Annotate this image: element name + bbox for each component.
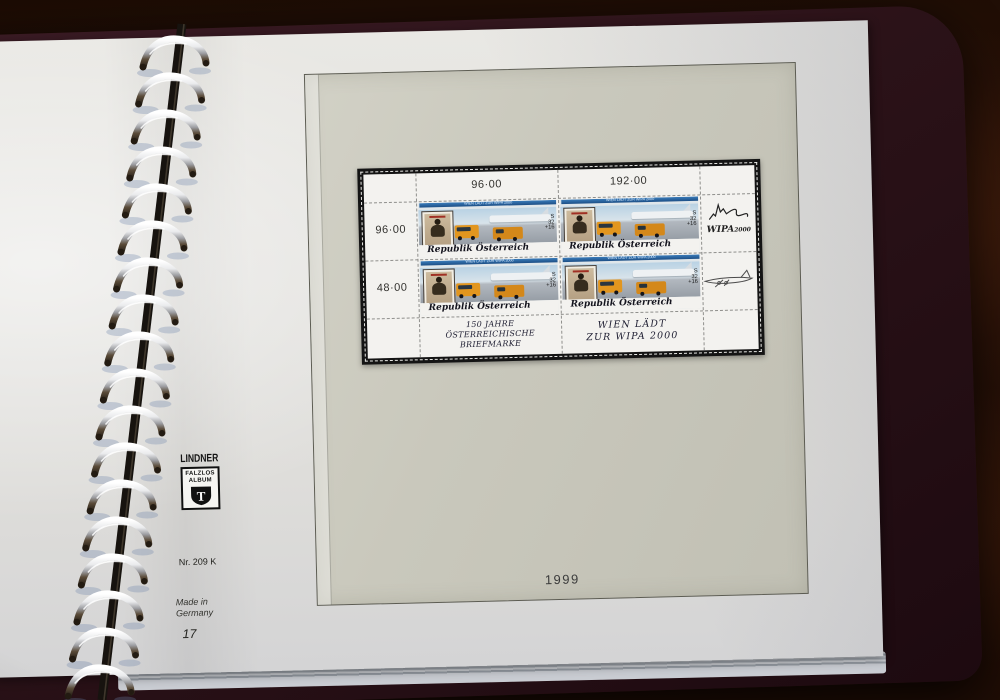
souvenir-sheet: 96·00 192·00 96·00 48·00 WIEN LÄDT ZUR W… (363, 165, 758, 358)
inner-stamp-title-line (429, 216, 445, 218)
stamp-value: S 32 +16 (545, 214, 555, 230)
black-stamp-mount: 96·00 192·00 96·00 48·00 WIEN LÄDT ZUR W… (357, 159, 765, 365)
airplane-sketch-icon (703, 267, 756, 295)
stamp-cell: WIEN LÄDT ZUR WIPA 2000 S 32 +16 Republi… (417, 199, 558, 258)
stamp-on-stamp (564, 208, 595, 244)
spiral-ring-binding (30, 0, 250, 700)
orange-apron-truck-icon (598, 279, 622, 293)
sheet-margin-value-row2: 48·00 (366, 281, 418, 294)
stamp-cell: WIEN LÄDT ZUR WIPA 2000 S 32 +16 Republi… (418, 257, 559, 316)
portrait-body (573, 221, 587, 233)
stamp-value: S 32 +16 (687, 211, 697, 227)
portrait-body (574, 279, 588, 291)
stamp-country-strip: Republik Österreich (562, 296, 700, 311)
stamp-artwork: S 32 +16 (560, 203, 699, 241)
orange-mail-truck-icon (636, 281, 666, 294)
stamp: WIEN LÄDT ZUR WIPA 2000 S 32 +16 Republi… (419, 258, 558, 315)
photo-of-stamp-album: 96·00 192·00 96·00 48·00 WIEN LÄDT ZUR W… (0, 0, 1000, 700)
sheet-caption-left: 150 JAHRE ÖSTERREICHISCHE BRIEFMARKE (420, 318, 561, 351)
stamp-country-strip: Republik Österreich (421, 300, 559, 315)
stamp-value: S 32 +16 (546, 272, 556, 288)
stamp-country-strip: Republik Österreich (419, 242, 557, 257)
country-name-script: Republik Österreich (569, 239, 671, 251)
airplane-icon (631, 211, 693, 220)
stamp-artwork: S 32 +16 (420, 265, 559, 303)
stamp-artwork: S 32 +16 (562, 261, 701, 299)
stamp-artwork: S 32 +16 (418, 207, 557, 245)
stamp-value: S 32 +16 (688, 268, 698, 284)
orange-apron-truck-icon (455, 225, 479, 239)
wipa-logo-text: WIPA (707, 225, 735, 236)
surcharge-value: +16 (688, 279, 698, 285)
stamp: WIEN LÄDT ZUR WIPA 2000 S 32 +16 Republi… (418, 200, 557, 257)
year-label: 1999 (317, 566, 807, 593)
airplane-icon (489, 214, 551, 223)
stamp-country-strip: Republik Österreich (561, 238, 699, 253)
binder-rings (65, 39, 209, 699)
sheet-caption-right: WIEN LÄDT ZUR WIPA 2000 (562, 317, 703, 344)
country-name-script: Republik Österreich (427, 243, 529, 255)
protective-foil-panel: 96·00 192·00 96·00 48·00 WIEN LÄDT ZUR W… (304, 62, 809, 606)
inner-stamp-title-line (571, 212, 587, 214)
stamp: WIEN LÄDT ZUR WIPA 2000 S 32 +16 Republi… (560, 196, 699, 253)
surcharge-value: +16 (545, 225, 555, 231)
wipa-logo-year: 2000 (734, 226, 751, 233)
sheet-margin-value-top-right: 192·00 (558, 173, 698, 188)
stamp-cell: WIEN LÄDT ZUR WIPA 2000 S 32 +16 Republi… (559, 195, 700, 254)
airplane-icon (633, 269, 695, 278)
portrait-body (431, 225, 445, 237)
wipa-2000-logo: WIPA2000 (703, 199, 754, 235)
caption-line: BRIEFMARKE (420, 337, 560, 350)
inner-stamp-title-line (431, 274, 447, 276)
airplane-icon (491, 272, 553, 281)
caption-line: ZUR WIPA 2000 (562, 329, 702, 344)
cathedral-skyline-icon (703, 199, 754, 222)
stamp-on-stamp (566, 266, 597, 302)
inner-stamp-title-line (573, 270, 589, 272)
country-name-script: Republik Österreich (429, 301, 531, 313)
sheet-margin-value-top-left: 96·00 (417, 177, 557, 192)
orange-mail-truck-icon (493, 227, 523, 240)
surcharge-value: +16 (687, 221, 697, 227)
sheet-margin-value-row1: 96·00 (365, 223, 417, 236)
stamp-on-stamp (422, 211, 453, 247)
orange-mail-truck-icon (635, 223, 665, 236)
portrait-body (432, 283, 446, 295)
stamp-on-stamp (424, 269, 455, 305)
surcharge-value: +16 (546, 283, 556, 289)
orange-apron-truck-icon (597, 221, 621, 235)
stamp-cell: WIEN LÄDT ZUR WIPA 2000 S 32 +16 Republi… (560, 253, 701, 312)
orange-mail-truck-icon (494, 285, 524, 298)
orange-apron-truck-icon (456, 283, 480, 297)
stamp: WIEN LÄDT ZUR WIPA 2000 S 32 +16 Republi… (561, 254, 700, 311)
country-name-script: Republik Österreich (570, 297, 672, 309)
